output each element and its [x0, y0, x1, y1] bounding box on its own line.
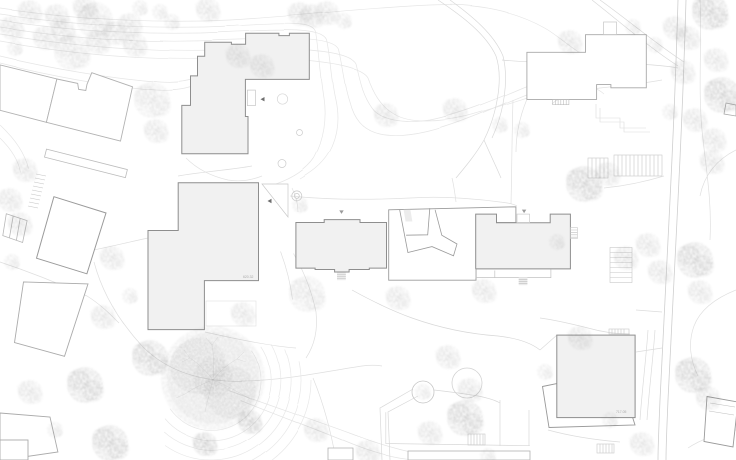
- svg-text:717.05: 717.05: [616, 410, 626, 414]
- svg-text:620.32: 620.32: [243, 275, 253, 279]
